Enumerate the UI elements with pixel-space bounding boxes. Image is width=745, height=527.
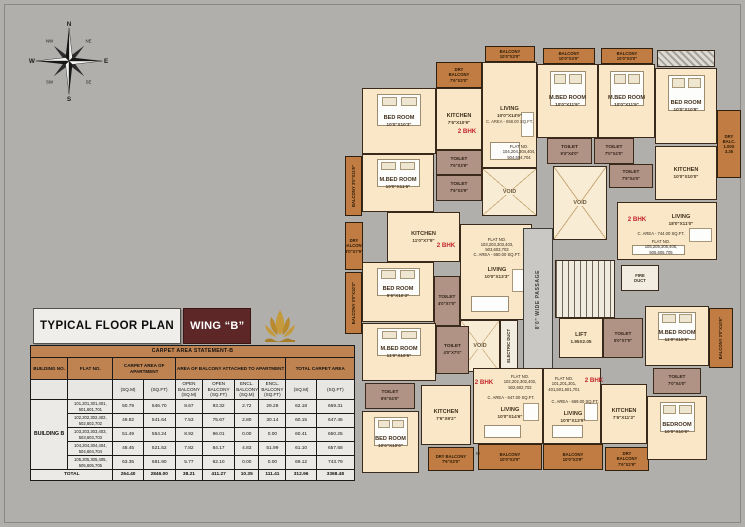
room-label: 7'6"X10'9" [448,120,470,126]
room-label: 10'0"X10'9" [674,107,699,113]
value-cell: 96.01 [203,428,235,442]
room-label: ELECTRIC DUCT [506,329,511,363]
room-label: 7'6"X9'2" [436,416,456,422]
toilet-tr-1: TOILET9'3"X4'0" [547,138,592,164]
room-label: 1.95X2.05 [571,339,592,345]
subheader: OPEN BALCONY (SQ.FT) [203,380,235,400]
total-value-cell: 2846.00 [143,470,175,481]
building-cell: BUILDING B [31,400,68,470]
room-label: 9'6"X10'3" [387,293,409,299]
flat-no-cell: 105,205,305,405, 505,605,705 [68,456,113,470]
room-label: M.BED ROOM [380,177,417,184]
compass-se-label: SE [86,79,92,84]
living-label-105: LIVING18'0"X11'0" [653,212,709,228]
carpet-table-body: BUILDING B101,201,301,401, 501,601,70150… [31,400,355,481]
toilet-102-a: TOILET4'0"X7'0" [436,326,469,374]
room-label: DUCT [634,278,646,283]
kitchen-102: KITCHEN7'6"X9'2" [421,385,471,445]
compass-nw-label: NW [46,38,54,43]
compass-n-label: N [67,21,72,28]
mbedroom-104: M.BED ROOM10'0"X11'6" [362,154,434,212]
value-cell: 50.79 [113,400,143,414]
table-row: BUILDING B101,201,301,401, 501,601,70150… [31,400,355,414]
flat-label-105: FLAT NO.105,205,305,405,505,605,705 [629,238,693,256]
compass-w-label: W [29,58,35,65]
room-label: VOID [571,200,588,207]
value-cell: 546.70 [143,400,175,414]
bhk-label-102: 2 BHK [471,378,497,388]
table-row: 104,204,304,404, 504,604,70448.45521.527… [31,442,355,456]
room-label: 3.35 [725,149,733,154]
compass-ne-label: NE [85,38,91,43]
room-label: 10'0"X10'0" [378,443,403,449]
toilet-101: TOILET7'0"X4'0" [653,368,701,394]
room-label: 2 BHK [475,379,494,387]
room-label: C. AREA - 669.00 SQ.FT. [551,399,598,404]
subheader: ENCL. BALCONY (SQ.M) [235,380,259,400]
balcony-top-1: BALCONY10'0"X3'0" [485,46,535,62]
room-label: 2 BHK [628,216,647,224]
room-label: BEDROOM [662,422,691,429]
mbedroom-102: M.BED ROOM11'0"X10'6" [362,323,436,381]
staircase [555,260,615,318]
room-label: 2 BHK [437,242,456,250]
room-label: LIVING [501,407,520,414]
subheader: (SQ.M) [113,380,143,400]
compass-sw-label: SW [46,79,54,84]
room-label: 505,605,705 [649,250,672,255]
col-carpet-area: CARPET AREA OF APARTMENT [113,358,175,380]
room-label: C. AREA - 650.00 SQ.FT. [473,252,520,257]
value-cell: 5.77 [175,456,202,470]
void-2: VOID [553,166,607,240]
subheader-empty [31,380,68,400]
total-label-cell: TOTAL [31,470,113,481]
total-value-cell: 10.35 [235,470,259,481]
toilet-104-a: TOILET7'6"X3'9" [436,150,482,175]
value-cell: 521.52 [143,442,175,456]
balcony-top-3: BALCONY10'0"X3'0" [601,48,653,64]
carpet-area-table: CARPET AREA STATEMENT-B BUILDING NO. FLA… [30,345,355,481]
value-cell: 8.67 [175,400,202,414]
flat-no-cell: 103,203,303,403, 503,603,703 [68,428,113,442]
compass-rose: N S E W NE SE SW NW [28,20,110,102]
kitchen-103: KITCHEN11'0"X7'9" [387,212,460,262]
value-cell: 7.53 [175,414,202,428]
floor-plan: DRYBALCONY7'6"X3'0"BALCONY10'0"X3'0"BALC… [345,10,743,515]
subheader: OPEN BALCONY (SQ.M) [175,380,202,400]
total-value-cell: 38.21 [175,470,202,481]
title-block: TYPICAL FLOOR PLAN WING “B” [33,308,299,344]
room-label: 10'0"X14'6" [498,414,523,420]
value-cell: 7.82 [175,442,202,456]
room-label: BED ROOM [671,100,702,107]
bedroom-103: BED ROOM9'6"X10'3" [362,262,434,322]
total-value-cell: 264.40 [113,470,143,481]
void-1: VOID [482,168,537,216]
room-label: 7'0"X4'0" [605,151,623,156]
value-cell: 69.12 [286,456,316,470]
bedroom-104: BED ROOM10'0"X10'3" [362,88,436,154]
balcony-102: BALCONY10'0"X3'0" [478,444,542,470]
room-label: W [476,451,480,456]
room-label: BED ROOM [375,436,406,443]
dry-balcony-104: DRYBALCONY7'6"X3'0" [436,62,482,88]
flat-no-cell: 104,204,304,404, 504,604,704 [68,442,113,456]
room-label: LIVING [500,106,519,113]
bedroom-102: BED ROOM10'0"X10'0" [362,411,419,473]
room-label: KITCHEN [411,231,436,238]
value-cell: 2.80 [235,414,259,428]
room-label: 7'6"X3'0" [450,78,468,83]
kitchen-104: KITCHEN7'6"X10'9" [436,88,482,150]
room-label: 10'0"X11'9" [614,102,639,108]
carea-label-105: C. AREA - 744.00 SQ.FT. [621,230,701,238]
room-label: 3'0"X7'9" [345,249,363,254]
room-label: 10'0"X3'0" [500,457,520,462]
room-label: LIVING [564,411,583,418]
col-building: BUILDING NO. [31,358,68,380]
value-cell: 93.32 [203,400,235,414]
room-label: LIVING [488,267,507,274]
total-value-cell: 411.27 [203,470,235,481]
room-label: 6'6"X4'0" [381,396,399,401]
value-cell: 51.99 [259,442,286,456]
room-label: 7'6"X3'9" [450,188,468,193]
room-label: 7'6"X3'0" [442,459,460,464]
room-label: 7'6"X11'3" [613,415,635,421]
room-label: 4'0"X7'0" [438,301,456,306]
mbedroom-tr-2: M.BED ROOM10'0"X11'9" [598,64,655,138]
sofa-icon [552,425,583,438]
room-label: 7'6"X2'9" [618,462,636,467]
room-label: 504,604,704 [507,155,530,160]
toilet-104-b: TOILET7'6"X3'9" [436,175,482,201]
toilet-core: TOILET5'0"X7'0" [603,318,643,358]
room-label: 4'0"X7'0" [443,350,461,355]
compass-s-label: S [67,96,71,102]
window-hatch-tr [657,50,715,67]
value-cell: 60.41 [286,428,316,442]
value-cell: 62.18 [286,400,316,414]
room-label: C. AREA - 744.00 SQ.FT. [637,231,684,236]
room-label: 10'0"X3'0" [617,56,637,61]
room-label: 10'0"X10'0" [665,429,690,435]
dry-balcony-right: DRYBALC.1.00X3.35 [717,110,741,178]
value-cell: 554.24 [143,428,175,442]
bhk-label-105: 2 BHK [621,214,653,225]
room-label: M.BED ROOM [608,95,645,102]
compass-e-label: E [104,58,108,65]
dry-balcony-102: DRY BALCONY7'6"X3'0" [428,447,474,471]
room-label: LIVING [672,214,691,221]
balcony-top-2: BALCONY10'0"X3'0" [543,48,595,64]
room-label: BALCONY 3'0"X10'6" [718,317,723,359]
col-flat: FLAT NO. [68,358,113,380]
bhk-label-104: 2 BHK [447,126,487,137]
carea-label-101: C. AREA - 669.00 SQ.FT. [547,398,603,406]
room-label: 401,501,601,701 [548,387,579,392]
value-cell: 63.35 [113,456,143,470]
living-label-101: LIVING10'0"X13'9" [549,408,597,426]
balcony-left-2: BALCONY 3'0"X10'3" [345,272,362,334]
flat-label-104: FLAT NO.104,204,304,404,504,604,704 [493,138,545,166]
value-cell: 0.00 [259,456,286,470]
subheader: (SQ.M) [286,380,316,400]
toilet-103: TOILET4'0"X7'0" [434,276,460,326]
bedroom-tr: BED ROOM10'0"X10'9" [655,68,717,144]
page-title: TYPICAL FLOOR PLAN [33,308,181,344]
room-label: KITCHEN [612,408,637,415]
room-label: 2 BHK [458,128,477,136]
flat-label-102: FLAT NO.102,202,302,402,502,602,702 [495,372,545,392]
room-label: BALCONY 3'0"X11'6" [351,165,356,207]
value-cell: 62.10 [203,456,235,470]
room-label: 7'9"X4'0" [622,176,640,181]
subheader: (SQ.FT) [143,380,175,400]
brand-logo-icon [261,308,299,344]
value-cell: 0.00 [235,456,259,470]
kitchen-tr: KITCHEN10'0"X10'0" [655,146,717,200]
room-label: 10'0"X3'9" [563,457,583,462]
dry-balcony-left: DRYBALCONY3'0"X7'9" [345,222,363,270]
room-label: 11'0"X10'6" [387,353,412,359]
room-label: M.BED ROOM [659,330,696,337]
room-label: 7'6"X3'9" [450,163,468,168]
value-cell: 8.92 [175,428,202,442]
subheader: ENCL. BALCONY (SQ.FT) [259,380,286,400]
value-cell: 30.14 [259,414,286,428]
balcony-left-1: BALCONY 3'0"X11'6" [345,156,362,216]
room-label: M.BED ROOM [381,346,418,353]
toilet-tr-2: TOILET7'0"X4'0" [594,138,634,164]
bhk-label-103: 2 BHK [429,240,463,251]
room-label: VOID [471,343,488,350]
bhk-label-101: 2 BHK [581,376,607,386]
room-label: BED ROOM [384,115,415,122]
value-cell: 84.17 [203,442,235,456]
value-cell: 60.15 [286,414,316,428]
flat-no-cell: 102,202,302,402, 502,602,702 [68,414,113,428]
mbedroom-tr-1: M.BED ROOM10'0"X11'9" [537,64,598,138]
dry-balcony-101: DRYBALCONY7'6"X2'9" [605,447,649,471]
room-label: 10'0"X13'9" [561,418,586,424]
living-label-102: LIVING10'0"X14'6" [485,404,535,422]
value-cell: 681.90 [143,456,175,470]
value-cell: 0.00 [259,428,286,442]
room-label: C. AREA - 658.00 SQ.FT. [486,119,533,124]
room-label: 8'0" WIDE PASSAGE [535,270,541,329]
table-row: 102,202,302,402, 502,602,70249.82541.647… [31,414,355,428]
room-label: 7'0"X4'0" [668,381,686,386]
lift: LIFT1.95X2.05 [559,318,603,358]
sofa-icon [471,296,509,312]
room-label: 9'3"X4'0" [560,151,578,156]
room-label: BALCONY 3'0"X10'3" [351,282,356,324]
room-label: 10'0"X13'3" [485,274,510,280]
value-cell: 29.28 [259,400,286,414]
toilet-102-b: TOILET6'6"X4'0" [365,383,415,409]
w-label: W [473,450,483,458]
room-label: BED ROOM [383,286,414,293]
room-label: 10'0"X3'0" [500,54,520,59]
room-label: 10'0"X11'6" [386,184,411,190]
value-cell: 51.49 [113,428,143,442]
room-label: 502,602,702 [508,385,531,390]
room-label: KITCHEN [674,167,699,174]
room-label: 10'0"X10'0" [674,174,699,180]
toilet-tr-3: TOILET7'9"X4'0" [609,164,653,188]
table-total-row: TOTAL264.402846.0038.21411.2710.35111.41… [31,470,355,481]
flat-label-103: FLAT NO.103,203,303,403,503,603,703C. AR… [465,232,529,262]
value-cell: 541.64 [143,414,175,428]
room-label: 18'0"X11'0" [669,221,694,227]
value-cell: 49.82 [113,414,143,428]
room-label: LIFT [575,332,587,339]
bedroom-101: BEDROOM10'0"X10'0" [647,396,707,460]
room-label: VOID [501,189,518,196]
balcony-right-101: BALCONY 3'0"X10'6" [709,308,733,368]
wing-badge: WING “B” [183,308,251,344]
table-row: 105,205,305,405, 505,605,70563.35681.905… [31,456,355,470]
table-title: CARPET AREA STATEMENT-B [31,346,355,358]
flat-label-101: FLAT NO.101,201,301,401,501,601,701 [545,372,583,396]
value-cell: 61.10 [286,442,316,456]
value-cell: 0.00 [235,428,259,442]
total-value-cell: 312.96 [286,470,316,481]
value-cell: 2.72 [235,400,259,414]
room-label: 10'0"X11'9" [555,102,580,108]
room-label: 10'0"X3'0" [559,56,579,61]
value-cell: 48.45 [113,442,143,456]
subheader-empty [68,380,113,400]
kitchen-101: KITCHEN7'6"X11'3" [601,384,647,444]
living-label-103: LIVING10'0"X13'3" [473,264,521,282]
table-row: 103,203,303,403, 503,603,70351.49554.248… [31,428,355,442]
sofa-icon [484,425,521,438]
room-label: KITCHEN [447,113,472,120]
balcony-101: BALCONY10'0"X3'9" [543,444,603,470]
room-label: M.BED ROOM [549,95,586,102]
col-balcony-area: AREA OF BALCONY ATTACHED TO APARTMENT [175,358,286,380]
room-label: KITCHEN [434,409,459,416]
value-cell: 4.83 [235,442,259,456]
fire-duct: FIREDUCT [621,265,659,291]
room-label: 5'0"X7'0" [614,338,632,343]
electric-duct: ELECTRIC DUCT [500,320,518,372]
room-label: C. AREA - 647.00 SQ.FT. [487,395,534,400]
value-cell: 75.67 [203,414,235,428]
total-value-cell: 111.41 [259,470,286,481]
room-label: 10'0"X10'3" [387,122,412,128]
mbedroom-101: M.BED ROOM11'0"X10'6" [645,306,709,366]
room-label: 11'0"X10'6" [665,337,690,343]
room-label: 2 BHK [585,377,604,385]
flat-no-cell: 101,201,301,401, 501,601,701 [68,400,113,414]
carea-label-102: C. AREA - 647.00 SQ.FT. [481,394,541,402]
